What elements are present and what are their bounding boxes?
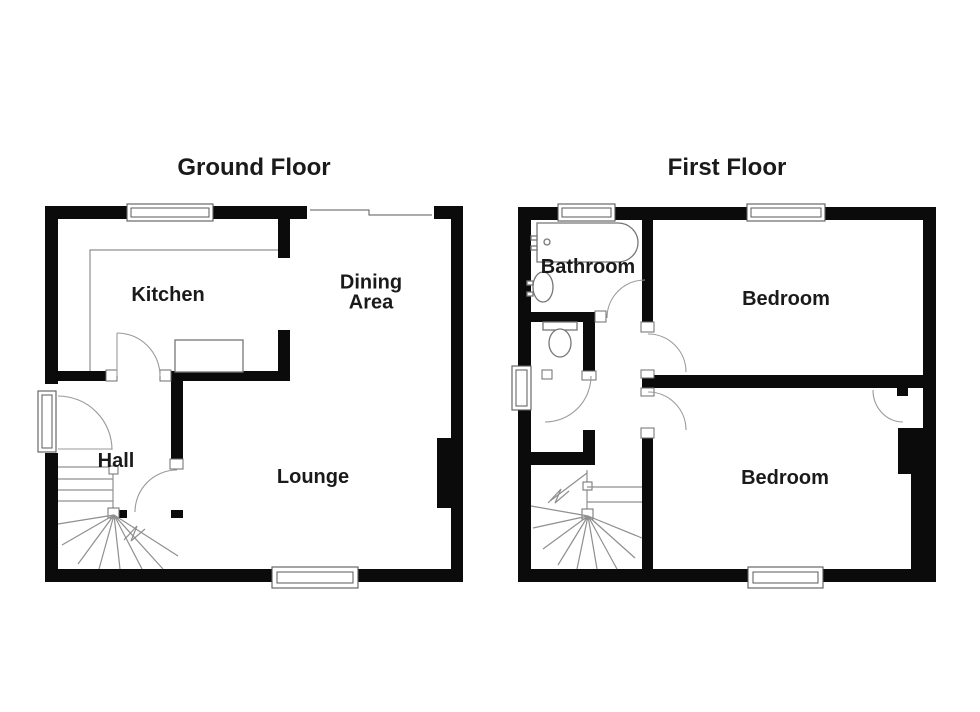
door-jamb: [641, 322, 654, 332]
wall: [171, 381, 183, 468]
door-swing-icon: [545, 376, 591, 422]
door-jamb: [106, 370, 117, 381]
door-jamb: [160, 370, 171, 381]
door-swing-icon: [117, 333, 160, 376]
wall: [171, 510, 183, 518]
chimney-breast: [898, 428, 923, 474]
window-symbol: [558, 204, 615, 221]
door-jamb: [582, 371, 596, 380]
floor-plan-drawing: [0, 0, 980, 712]
stair-winder-fan: [58, 515, 178, 569]
wall: [911, 474, 923, 582]
window-symbol: [512, 366, 531, 410]
door-swing-icon: [135, 470, 177, 512]
door-jamb: [542, 370, 552, 379]
window-symbol: [272, 567, 358, 588]
room-label-lounge: Lounge: [277, 467, 349, 487]
door-jamb: [170, 459, 183, 469]
window-symbol: [748, 567, 823, 588]
wall: [518, 569, 936, 582]
wall: [642, 375, 923, 388]
window-symbol: [747, 204, 825, 221]
stairwell-wall: [583, 430, 595, 452]
toilet-icon: [543, 322, 577, 357]
wall: [642, 220, 653, 322]
wall: [923, 207, 936, 582]
room-label-bathroom: Bathroom: [541, 257, 635, 277]
room-label-hall: Hall: [98, 451, 135, 471]
window-symbol: [127, 204, 213, 221]
wall: [278, 219, 290, 258]
wall: [58, 371, 108, 381]
front-door-icon: [38, 391, 112, 452]
wall: [45, 569, 463, 582]
ground-floor-plan: [38, 204, 463, 588]
stair-winder-fan: [531, 506, 642, 569]
door-jamb: [641, 428, 654, 438]
stair-break-line: [548, 489, 569, 503]
kitchen-unit-icon: [175, 340, 243, 372]
door-jamb: [595, 311, 606, 322]
stairwell-wall: [531, 452, 595, 465]
first-floor-title: First Floor: [668, 156, 787, 180]
room-label-kitchen: Kitchen: [131, 285, 204, 305]
door-jamb: [641, 370, 654, 378]
door-swing-icon: [648, 392, 686, 430]
ground-floor-title: Ground Floor: [177, 156, 330, 180]
wall: [897, 388, 908, 396]
room-label-bedroom-front: Bedroom: [742, 289, 830, 309]
wall: [583, 312, 595, 372]
wall: [278, 330, 290, 381]
stairs-symbol: [531, 470, 642, 569]
door-swing-icon: [607, 280, 645, 318]
room-label-bedroom-rear: Bedroom: [741, 468, 829, 488]
stairs-symbol: [58, 466, 178, 569]
door-swing-icon: [648, 334, 686, 372]
wall: [451, 206, 463, 582]
room-label-dining-area: Dining Area: [328, 273, 414, 314]
window-symbol: [307, 205, 434, 220]
wall: [642, 438, 653, 569]
chimney-breast: [437, 438, 452, 508]
floor-plan-page: Ground Floor First Floor Kitchen Dining …: [0, 0, 980, 712]
